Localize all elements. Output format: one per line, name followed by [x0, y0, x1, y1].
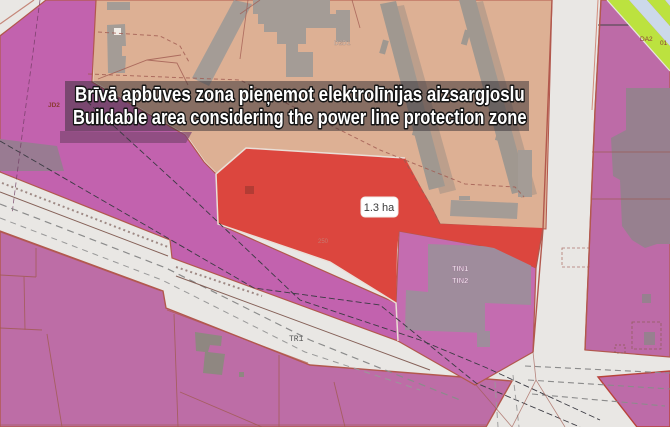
svg-text:Buildable area considering the: Buildable area considering the power lin… — [73, 105, 527, 128]
svg-text:250: 250 — [318, 239, 329, 245]
svg-text:TR1: TR1 — [289, 335, 304, 344]
svg-text:1.3 ha: 1.3 ha — [364, 202, 395, 214]
svg-text:TIN2: TIN2 — [452, 276, 468, 285]
svg-text:DA2: DA2 — [640, 36, 653, 43]
svg-text:D2D1: D2D1 — [334, 40, 351, 47]
svg-text:TIN1: TIN1 — [452, 264, 468, 273]
svg-text:01: 01 — [660, 40, 668, 47]
svg-text:Brīvā apbūves zona pieņemot el: Brīvā apbūves zona pieņemot elektrolīnij… — [75, 82, 525, 105]
svg-text:JD2: JD2 — [48, 102, 60, 109]
